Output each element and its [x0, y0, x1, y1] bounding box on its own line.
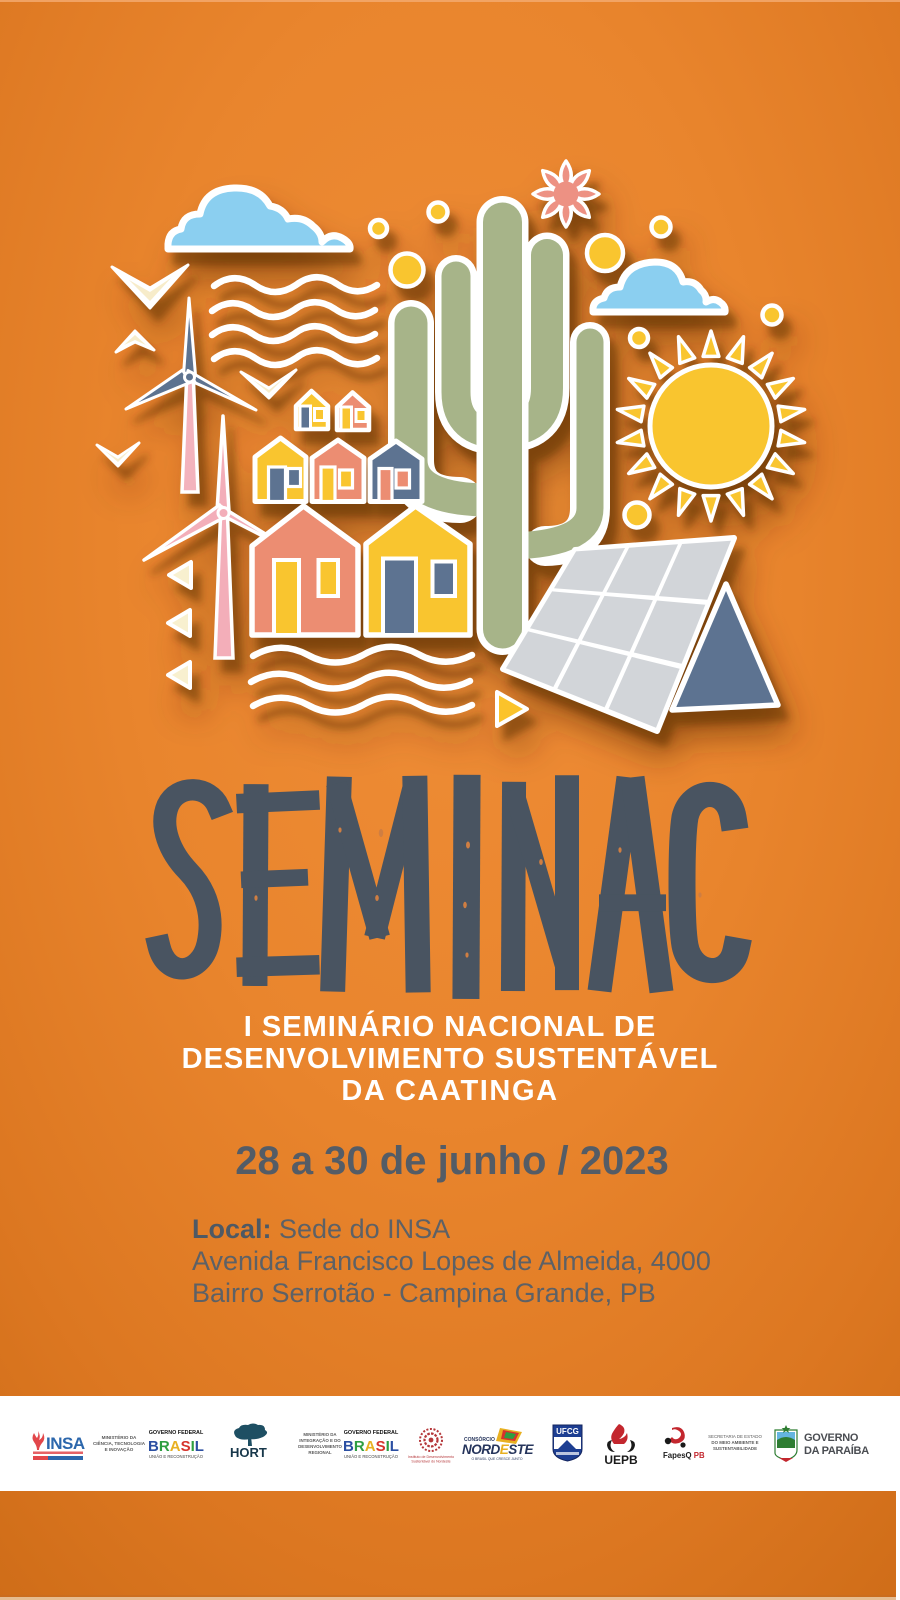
svg-text:GOVERNO FEDERAL: GOVERNO FEDERAL — [149, 1430, 204, 1436]
svg-text:UNIÃO E RECONSTRUÇÃO: UNIÃO E RECONSTRUÇÃO — [344, 1454, 399, 1459]
svg-text:NORDESTE: NORDESTE — [462, 1442, 535, 1457]
svg-text:DESENVOLVIMENTO SUSTENTÁVEL: DESENVOLVIMENTO SUSTENTÁVEL — [182, 1041, 719, 1075]
svg-text:GOVERNO: GOVERNO — [804, 1432, 859, 1444]
svg-text:Avenida Francisco Lopes de Alm: Avenida Francisco Lopes de Almeida, 4000 — [192, 1246, 711, 1276]
svg-text:UEPB: UEPB — [604, 1453, 638, 1467]
svg-text:BRASIL: BRASIL — [343, 1438, 399, 1455]
svg-text:DO MEIO AMBIENTE E: DO MEIO AMBIENTE E — [711, 1440, 758, 1445]
svg-text:O BRASIL QUE CRESCE JUNTO: O BRASIL QUE CRESCE JUNTO — [471, 1457, 522, 1461]
svg-text:28 a 30 de junho / 2023: 28 a 30 de junho / 2023 — [235, 1139, 669, 1183]
svg-text:CIÊNCIA, TECNOLOGIA: CIÊNCIA, TECNOLOGIA — [93, 1439, 146, 1446]
svg-text:GOVERNO FEDERAL: GOVERNO FEDERAL — [344, 1430, 399, 1436]
svg-text:UNIÃO E RECONSTRUÇÃO: UNIÃO E RECONSTRUÇÃO — [149, 1454, 204, 1459]
svg-text:DA PARAÍBA: DA PARAÍBA — [804, 1444, 869, 1457]
svg-text:Sustentável do Nordeste: Sustentável do Nordeste — [411, 1460, 450, 1464]
svg-text:DA CAATINGA: DA CAATINGA — [341, 1075, 558, 1107]
svg-text:Local: Sede do INSA: Local: Sede do INSA — [192, 1214, 450, 1244]
svg-text:DESENVOLVIMENTO: DESENVOLVIMENTO — [298, 1444, 342, 1449]
svg-text:REGIONAL: REGIONAL — [308, 1450, 331, 1455]
svg-text:BRASIL: BRASIL — [148, 1438, 204, 1455]
svg-text:MINISTÉRIO DA: MINISTÉRIO DA — [102, 1433, 137, 1440]
svg-text:MINISTÉRIO DA: MINISTÉRIO DA — [303, 1432, 337, 1437]
svg-text:UFCG: UFCG — [556, 1427, 579, 1436]
svg-text:FapesQ PB: FapesQ PB — [663, 1451, 705, 1460]
svg-text:HORT: HORT — [230, 1445, 267, 1460]
svg-text:E INOVAÇÃO: E INOVAÇÃO — [105, 1446, 134, 1452]
svg-text:INSA: INSA — [46, 1434, 85, 1453]
svg-text:SUSTENTABILIDADE: SUSTENTABILIDADE — [713, 1446, 757, 1451]
svg-text:I SEMINÁRIO NACIONAL DE: I SEMINÁRIO NACIONAL DE — [244, 1009, 656, 1043]
svg-text:Bairro Serrotão - Campina Gra: Bairro Serrotão - Campina Grande, PB — [192, 1278, 656, 1308]
svg-text:Instituto de Desenvolvimento: Instituto de Desenvolvimento — [408, 1455, 454, 1459]
svg-text:INTEGRAÇÃO E DO: INTEGRAÇÃO E DO — [299, 1438, 341, 1443]
svg-text:SECRETARIA DE ESTADO: SECRETARIA DE ESTADO — [708, 1434, 762, 1439]
